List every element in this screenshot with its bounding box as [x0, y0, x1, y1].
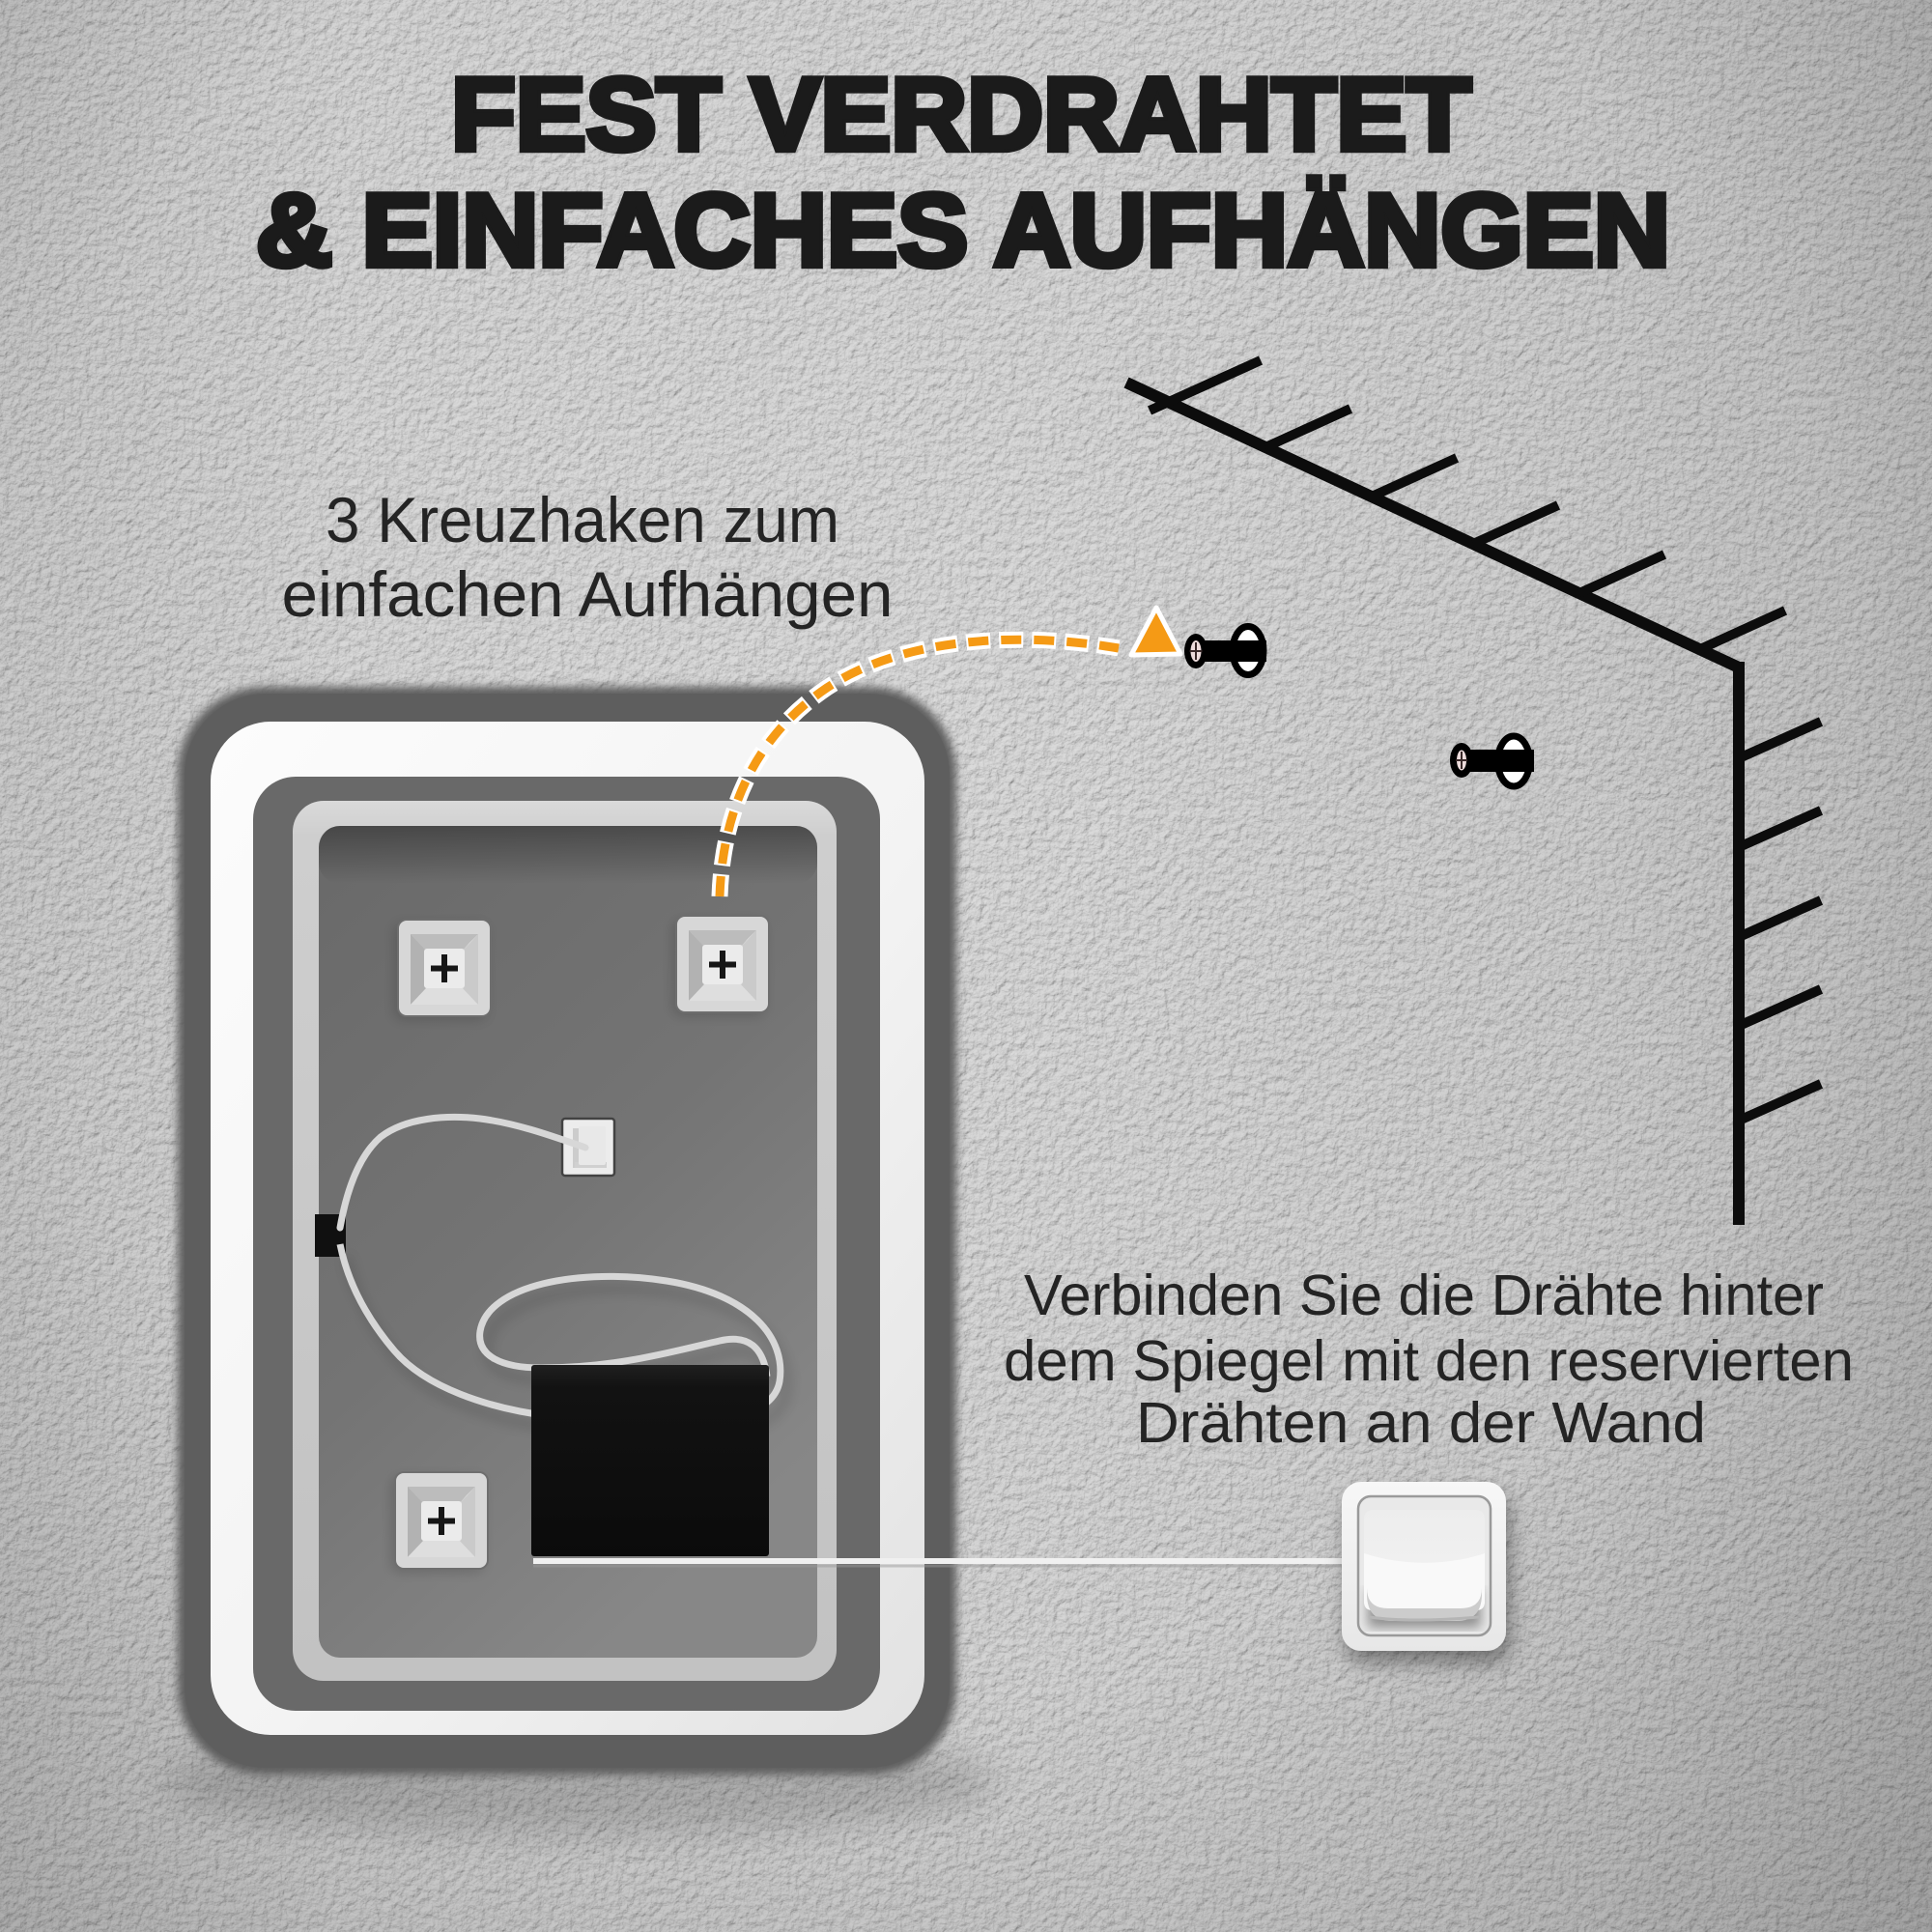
svg-text:einfachen Aufhängen: einfachen Aufhängen: [282, 558, 894, 630]
svg-text:dem Spiegel mit den reserviert: dem Spiegel mit den reservierten: [1004, 1329, 1854, 1393]
svg-text:Drähten an der Wand: Drähten an der Wand: [1136, 1391, 1706, 1455]
svg-text:3 Kreuzhaken zum: 3 Kreuzhaken zum: [326, 484, 839, 555]
svg-text:Verbinden Sie die Drähte hinte: Verbinden Sie die Drähte hinter: [1024, 1264, 1824, 1327]
svg-text:FEST VERDRAHTET: FEST VERDRAHTET: [451, 56, 1471, 172]
svg-text:& EINFACHES AUFHÄNGEN: & EINFACHES AUFHÄNGEN: [256, 172, 1670, 288]
